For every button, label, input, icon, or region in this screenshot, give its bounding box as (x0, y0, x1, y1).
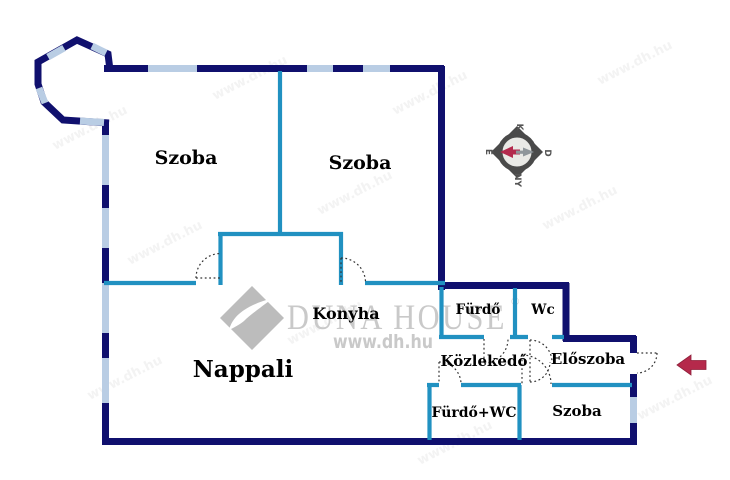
room-label-nappali: Nappali (193, 356, 294, 383)
compass-label-left: É (483, 149, 495, 155)
entry-arrow-icon (677, 355, 706, 375)
tile-watermark: www.dh.hu (125, 218, 205, 269)
watermark-url-text: www.dh.hu (333, 331, 433, 353)
room-label-szoba-1: Szoba (155, 147, 218, 169)
tile-watermark: www.dh.hu (595, 38, 675, 89)
tile-watermarks: www.dh.hu www.dh.hu www.dh.hu www.dh.hu … (50, 38, 715, 469)
tile-watermark: www.dh.hu (315, 168, 395, 219)
room-label-szoba-2: Szoba (329, 152, 392, 174)
room-label-kozlekedo: Közlekedő (441, 352, 528, 370)
tile-watermark: www.dh.hu (50, 103, 130, 154)
room-label-szoba-3: Szoba (552, 402, 602, 420)
compass: K D NY É (483, 124, 552, 188)
room-label-konyha: Konyha (312, 304, 379, 323)
door-swing-entrance (637, 353, 657, 373)
tile-watermark: www.dh.hu (390, 68, 470, 119)
tile-watermark: www.dh.hu (635, 373, 715, 424)
compass-label-bottom: NY (512, 173, 522, 188)
compass-needle-tail (516, 151, 524, 154)
walls-partition (104, 71, 632, 440)
room-label-furdo: Fürdő (456, 302, 501, 318)
door-swing-kozlekedo-eloszoba (530, 340, 552, 382)
floor-plan-page: www.dh.hu www.dh.hu www.dh.hu www.dh.hu … (0, 0, 730, 480)
floor-plan-svg: www.dh.hu www.dh.hu www.dh.hu www.dh.hu … (0, 0, 730, 480)
window-segment (92, 46, 106, 53)
window-segment (48, 48, 64, 57)
door-swing-szoba1 (196, 254, 221, 279)
door-swing-szoba2 (341, 258, 366, 283)
compass-label-top: K (514, 124, 524, 132)
window-segment (80, 121, 104, 123)
room-label-furdo-wc: Fürdő+WC (432, 405, 517, 421)
room-label-wc: Wc (530, 302, 554, 318)
room-label-eloszoba: Előszoba (551, 350, 626, 368)
tile-watermark: www.dh.hu (540, 183, 620, 234)
logo-diamond-icon (220, 286, 284, 350)
compass-label-right: D (542, 149, 552, 156)
tile-watermark: www.dh.hu (85, 353, 165, 404)
